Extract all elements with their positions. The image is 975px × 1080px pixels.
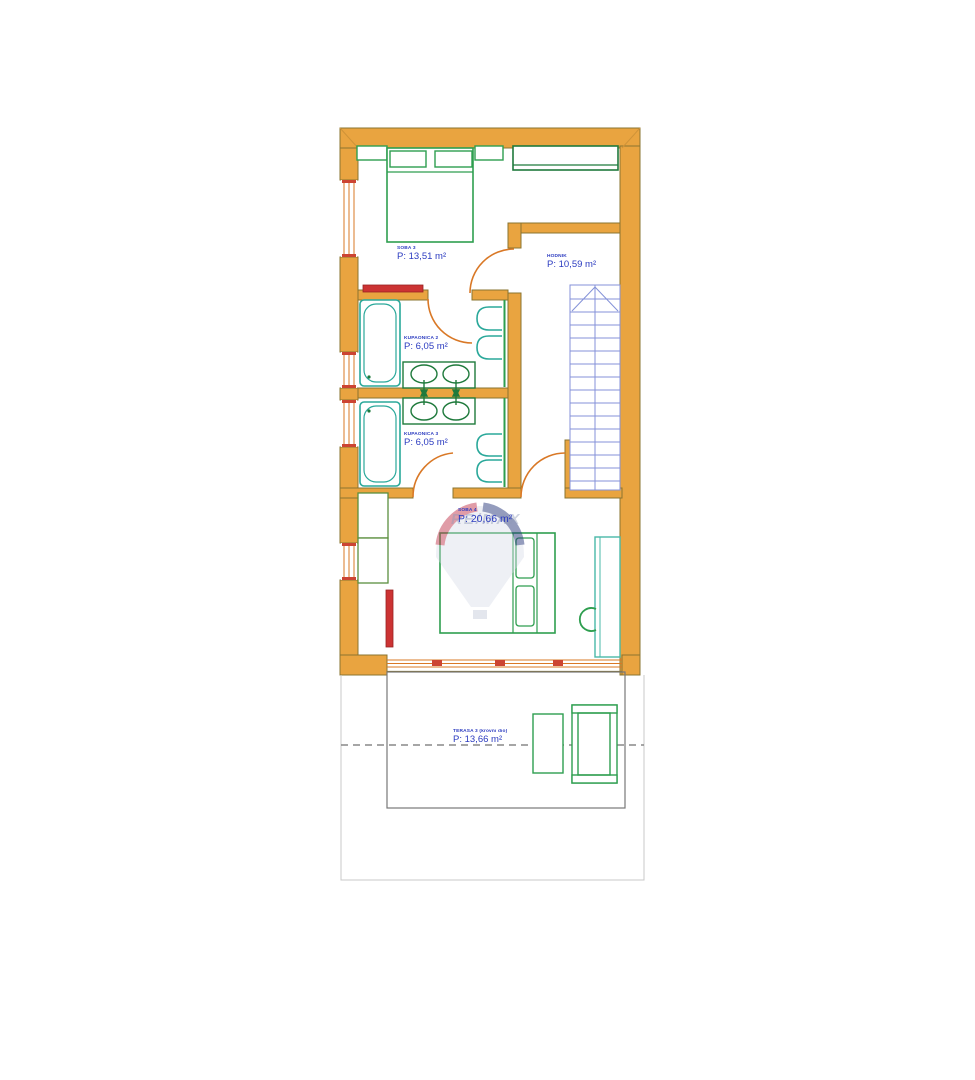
wall-left-seg	[340, 388, 358, 400]
window-glass-door-band	[387, 660, 622, 672]
room-name: SOBA 4	[458, 508, 501, 513]
room-name: HODNIK	[547, 254, 586, 259]
bathtub-drain	[367, 409, 370, 412]
radiator	[363, 285, 423, 292]
wall-between-baths	[358, 388, 508, 398]
room-name: KUPAONICA 2	[404, 336, 439, 341]
room-area: P: 6,05 m²	[404, 342, 448, 352]
bathtub-drain	[367, 375, 370, 378]
room-area: P: 20,66 m²	[458, 514, 512, 525]
toilet	[477, 434, 502, 456]
wall-soba3-bath	[472, 290, 508, 300]
room-label-kupaonica3: KUPAONICA 3 P: 6,05 m²	[404, 432, 448, 449]
terrace	[341, 672, 644, 880]
wall-left-seg	[340, 148, 358, 180]
terrace-table	[533, 714, 563, 773]
nightstand	[475, 146, 503, 160]
bidet	[477, 336, 502, 359]
wall-top	[340, 128, 640, 148]
wall-bottom-left-corner	[340, 655, 387, 675]
room-name: SOBA 3	[397, 246, 436, 251]
desk-closet	[595, 537, 620, 657]
nightstand	[357, 146, 387, 160]
room-area: P: 6,05 m²	[404, 438, 448, 448]
room-area: P: 13,66 m²	[453, 735, 521, 745]
wall-hall-divider	[508, 293, 521, 488]
wardrobe	[358, 493, 388, 538]
bidet	[477, 460, 502, 482]
room-label-soba3: SOBA 3 P: 13,51 m²	[397, 246, 446, 263]
wall-left-seg	[340, 257, 358, 352]
door-arc-kupaonica3-soba4	[413, 453, 453, 497]
pillow	[516, 586, 534, 626]
wall-closet-nook	[508, 223, 620, 233]
room-area: P: 10,59 m²	[547, 260, 596, 270]
floor-plan-drawing	[0, 0, 975, 1080]
wardrobe	[358, 538, 388, 583]
room-label-terasa3: TERASA 3 (krovni dio) P: 13,66 m²	[453, 729, 521, 746]
floor-plan-page: RE/MAX SOBA 3 P: 13,51 m² HODNIK P: 10,5…	[0, 0, 975, 1080]
radiator	[386, 590, 393, 647]
window	[341, 543, 357, 580]
room-area: P: 13,51 m²	[397, 252, 446, 262]
window	[341, 352, 357, 388]
room-name: TERASA 3 (krovni dio)	[453, 729, 507, 734]
toilet	[477, 307, 502, 330]
terrace-lounger	[572, 705, 617, 783]
wall-stub	[508, 223, 521, 248]
window	[341, 180, 357, 257]
door-arc-soba3-hodnik	[470, 249, 514, 293]
wall-right	[620, 146, 640, 675]
bathtub	[360, 402, 400, 486]
door-arc-hodnik-soba4	[521, 453, 565, 497]
pillow	[390, 151, 426, 167]
room-label-soba4: SOBA 4 P: 20,66 m²	[458, 508, 512, 526]
wardrobe	[513, 146, 618, 170]
pillow	[435, 151, 472, 167]
room-name: KUPAONICA 3	[404, 432, 439, 437]
bathtub	[360, 300, 400, 386]
room-label-hodnik: HODNIK P: 10,59 m²	[547, 254, 596, 271]
staircase	[570, 285, 620, 490]
window	[341, 400, 357, 447]
room-label-kupaonica2: KUPAONICA 2 P: 6,05 m²	[404, 336, 448, 353]
chair	[580, 608, 596, 631]
wall-bath-soba4	[453, 488, 521, 498]
